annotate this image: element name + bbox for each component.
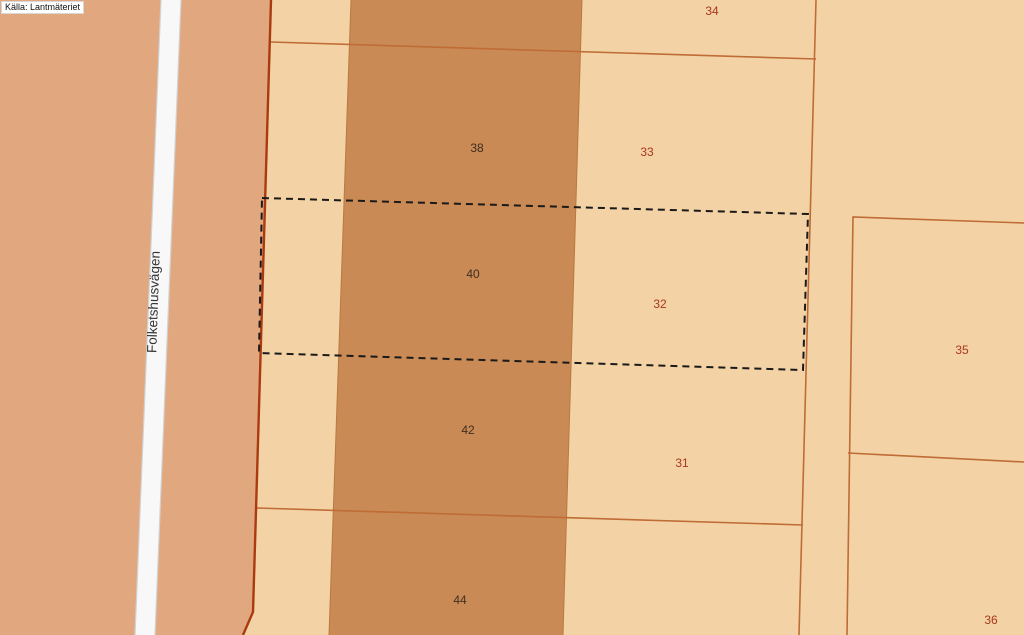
parcel-label-35: 35	[955, 343, 969, 357]
parcel-label-38: 38	[470, 141, 484, 155]
parcel-label-32: 32	[653, 297, 667, 311]
parcel-label-42: 42	[461, 423, 475, 437]
parcel-label-31: 31	[675, 456, 689, 470]
parcel-label-34: 34	[705, 4, 719, 18]
parcel-label-36: 36	[984, 613, 998, 627]
map-viewport: 34 38 33 40 32 35 42 31 44 36 Folketshus…	[0, 0, 1024, 635]
parcel-label-40: 40	[466, 267, 480, 281]
map-source-label: Källa: Lantmäteriet	[1, 1, 84, 14]
parcel-label-44: 44	[453, 593, 467, 607]
cadastral-map[interactable]: 34 38 33 40 32 35 42 31 44 36 Folketshus…	[0, 0, 1024, 635]
parcel-band-highlight[interactable]	[329, 0, 582, 635]
parcel-label-33: 33	[640, 145, 654, 159]
